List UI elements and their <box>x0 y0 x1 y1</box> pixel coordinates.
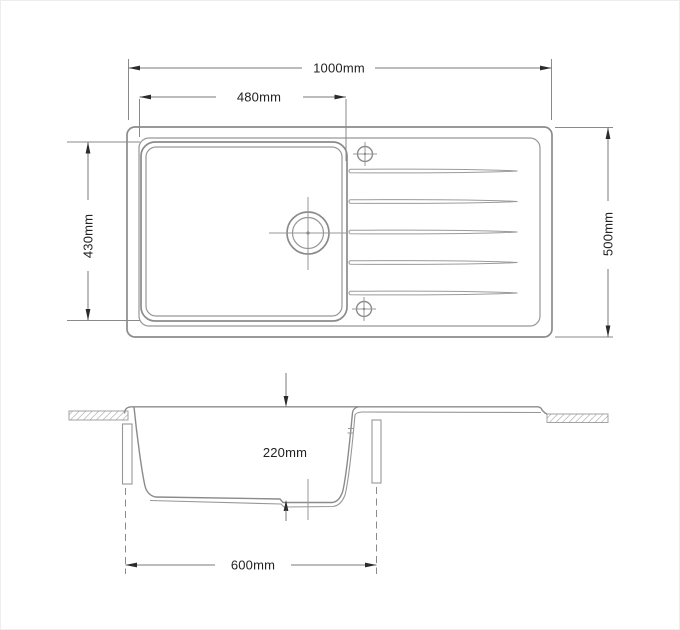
drainer-deck-underside <box>362 412 541 413</box>
section-view: 220mm 600mm <box>69 373 608 574</box>
dim-220-arrow-top <box>284 396 289 407</box>
dim-500-label: 500mm <box>601 212 616 256</box>
drainer-surface-edge <box>139 138 540 326</box>
drain-center-dot <box>306 231 309 234</box>
mounting-clip-left <box>123 424 133 484</box>
sink-technical-drawing: 1000mm 480mm 430mm <box>0 0 680 630</box>
drawing-canvas: 1000mm 480mm 430mm <box>1 1 680 630</box>
drainer-groove <box>349 200 518 204</box>
dim-480-arrow-left <box>140 95 152 100</box>
dim-430-arrow-bottom <box>86 309 91 321</box>
sink-outer-rim <box>127 127 552 337</box>
dim-600-arrow-left <box>126 563 138 568</box>
drainer-groove <box>349 261 518 265</box>
dim-430-label: 430mm <box>81 214 96 258</box>
dim-overall-length: 1000mm <box>129 59 552 120</box>
tap-hole-bottom <box>352 297 376 321</box>
tap-hole-bottom-dot <box>363 308 365 310</box>
countertop-left <box>69 411 128 420</box>
dim-430-arrow-top <box>86 142 91 154</box>
dim-220-arrow-bottom <box>284 500 289 511</box>
top-view: 1000mm 480mm 430mm <box>67 59 616 337</box>
section-top-surface <box>125 407 548 414</box>
countertop-right <box>547 414 608 423</box>
bowl-wall-left <box>134 407 155 497</box>
dim-1000-arrow-right <box>540 66 552 71</box>
drainer-groove <box>349 291 518 295</box>
drainer-groove <box>349 230 518 234</box>
drainer-groove <box>349 169 518 173</box>
dim-600-label: 600mm <box>231 558 275 573</box>
bowl-inner-edge <box>146 147 342 316</box>
dim-480-arrow-right <box>335 95 347 100</box>
drain-outlet <box>269 197 347 270</box>
countertop-hatch-right <box>547 414 608 423</box>
dim-500-arrow-top <box>606 128 611 140</box>
bowl-outer-edge <box>141 142 347 321</box>
bowl-bottom-outer <box>150 412 362 507</box>
dim-base-width: 600mm <box>126 487 377 574</box>
dim-480-label: 480mm <box>237 90 281 105</box>
dim-220-label: 220mm <box>263 445 307 460</box>
dim-1000-label: 1000mm <box>313 61 365 76</box>
dim-500-arrow-bottom <box>606 326 611 338</box>
bowl-bottom-inner <box>155 407 358 503</box>
dim-1000-arrow-left <box>129 66 141 71</box>
dim-600-arrow-right <box>365 563 377 568</box>
drainer-grooves <box>349 169 518 295</box>
tap-hole-top-dot <box>364 153 366 155</box>
dim-bowl-width: 480mm <box>140 90 347 162</box>
dim-overall-depth: 500mm <box>555 128 616 338</box>
sink-section-profile <box>125 407 548 520</box>
tap-hole-top <box>353 142 377 166</box>
dim-bowl-front-to-back: 430mm <box>67 142 140 321</box>
mounting-clip-right <box>372 420 381 483</box>
countertop-hatch-left <box>69 411 128 420</box>
